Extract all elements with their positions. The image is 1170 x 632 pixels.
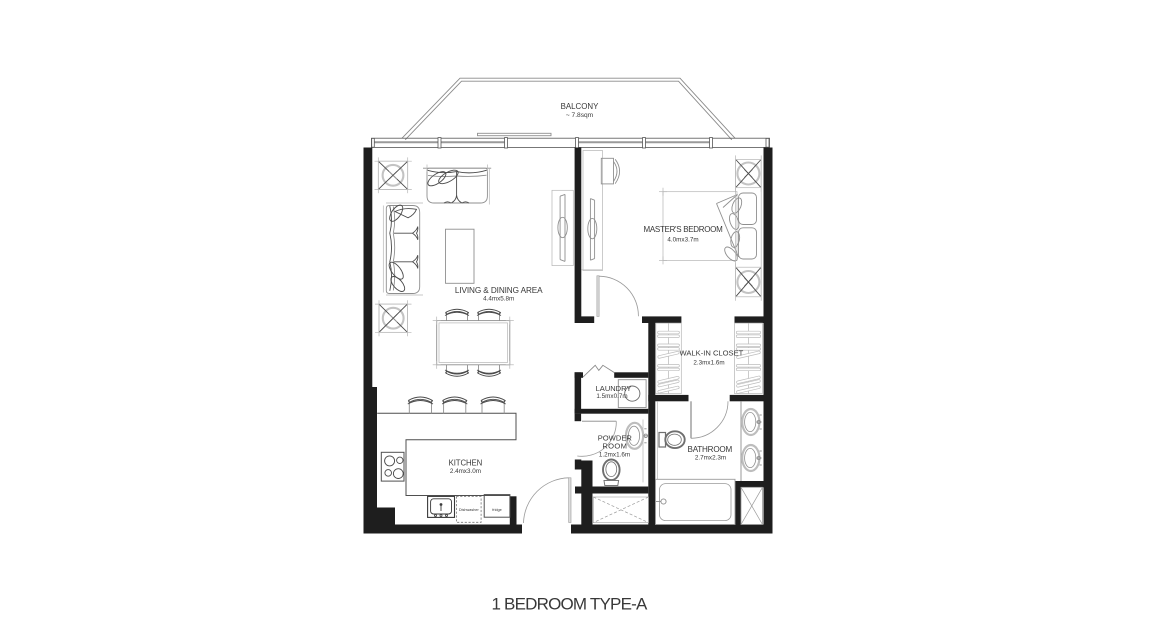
svg-text:WALK-IN CLOSET: WALK-IN CLOSET: [679, 349, 743, 358]
svg-text:LAUNDRY: LAUNDRY: [596, 384, 632, 393]
svg-text:Dishwasher: Dishwasher: [459, 508, 480, 512]
svg-text:LIVING & DINING AREA: LIVING & DINING AREA: [455, 286, 543, 295]
svg-text:1.2mx1.6m: 1.2mx1.6m: [599, 452, 630, 459]
svg-text:ROOM: ROOM: [602, 441, 627, 450]
svg-text:fridge: fridge: [492, 508, 502, 512]
svg-text:4.0mx3.7m: 4.0mx3.7m: [667, 237, 698, 244]
svg-text:1 BEDROOM TYPE-A: 1 BEDROOM TYPE-A: [491, 595, 647, 614]
svg-text:BALCONY: BALCONY: [561, 102, 599, 111]
svg-text:MASTER'S BEDROOM: MASTER'S BEDROOM: [644, 225, 724, 234]
svg-text:4.4mx5.8m: 4.4mx5.8m: [483, 296, 514, 303]
svg-text:2.7mx2.3m: 2.7mx2.3m: [695, 455, 726, 462]
svg-text:2.4mx3.0m: 2.4mx3.0m: [450, 468, 481, 475]
svg-text:1.5mx0.7m: 1.5mx0.7m: [596, 393, 627, 400]
svg-text:BATHROOM: BATHROOM: [688, 445, 733, 454]
svg-text:~ 7.8sqm: ~ 7.8sqm: [566, 112, 594, 119]
svg-text:KITCHEN: KITCHEN: [449, 459, 483, 468]
svg-text:2.3mx1.6m: 2.3mx1.6m: [693, 360, 724, 367]
